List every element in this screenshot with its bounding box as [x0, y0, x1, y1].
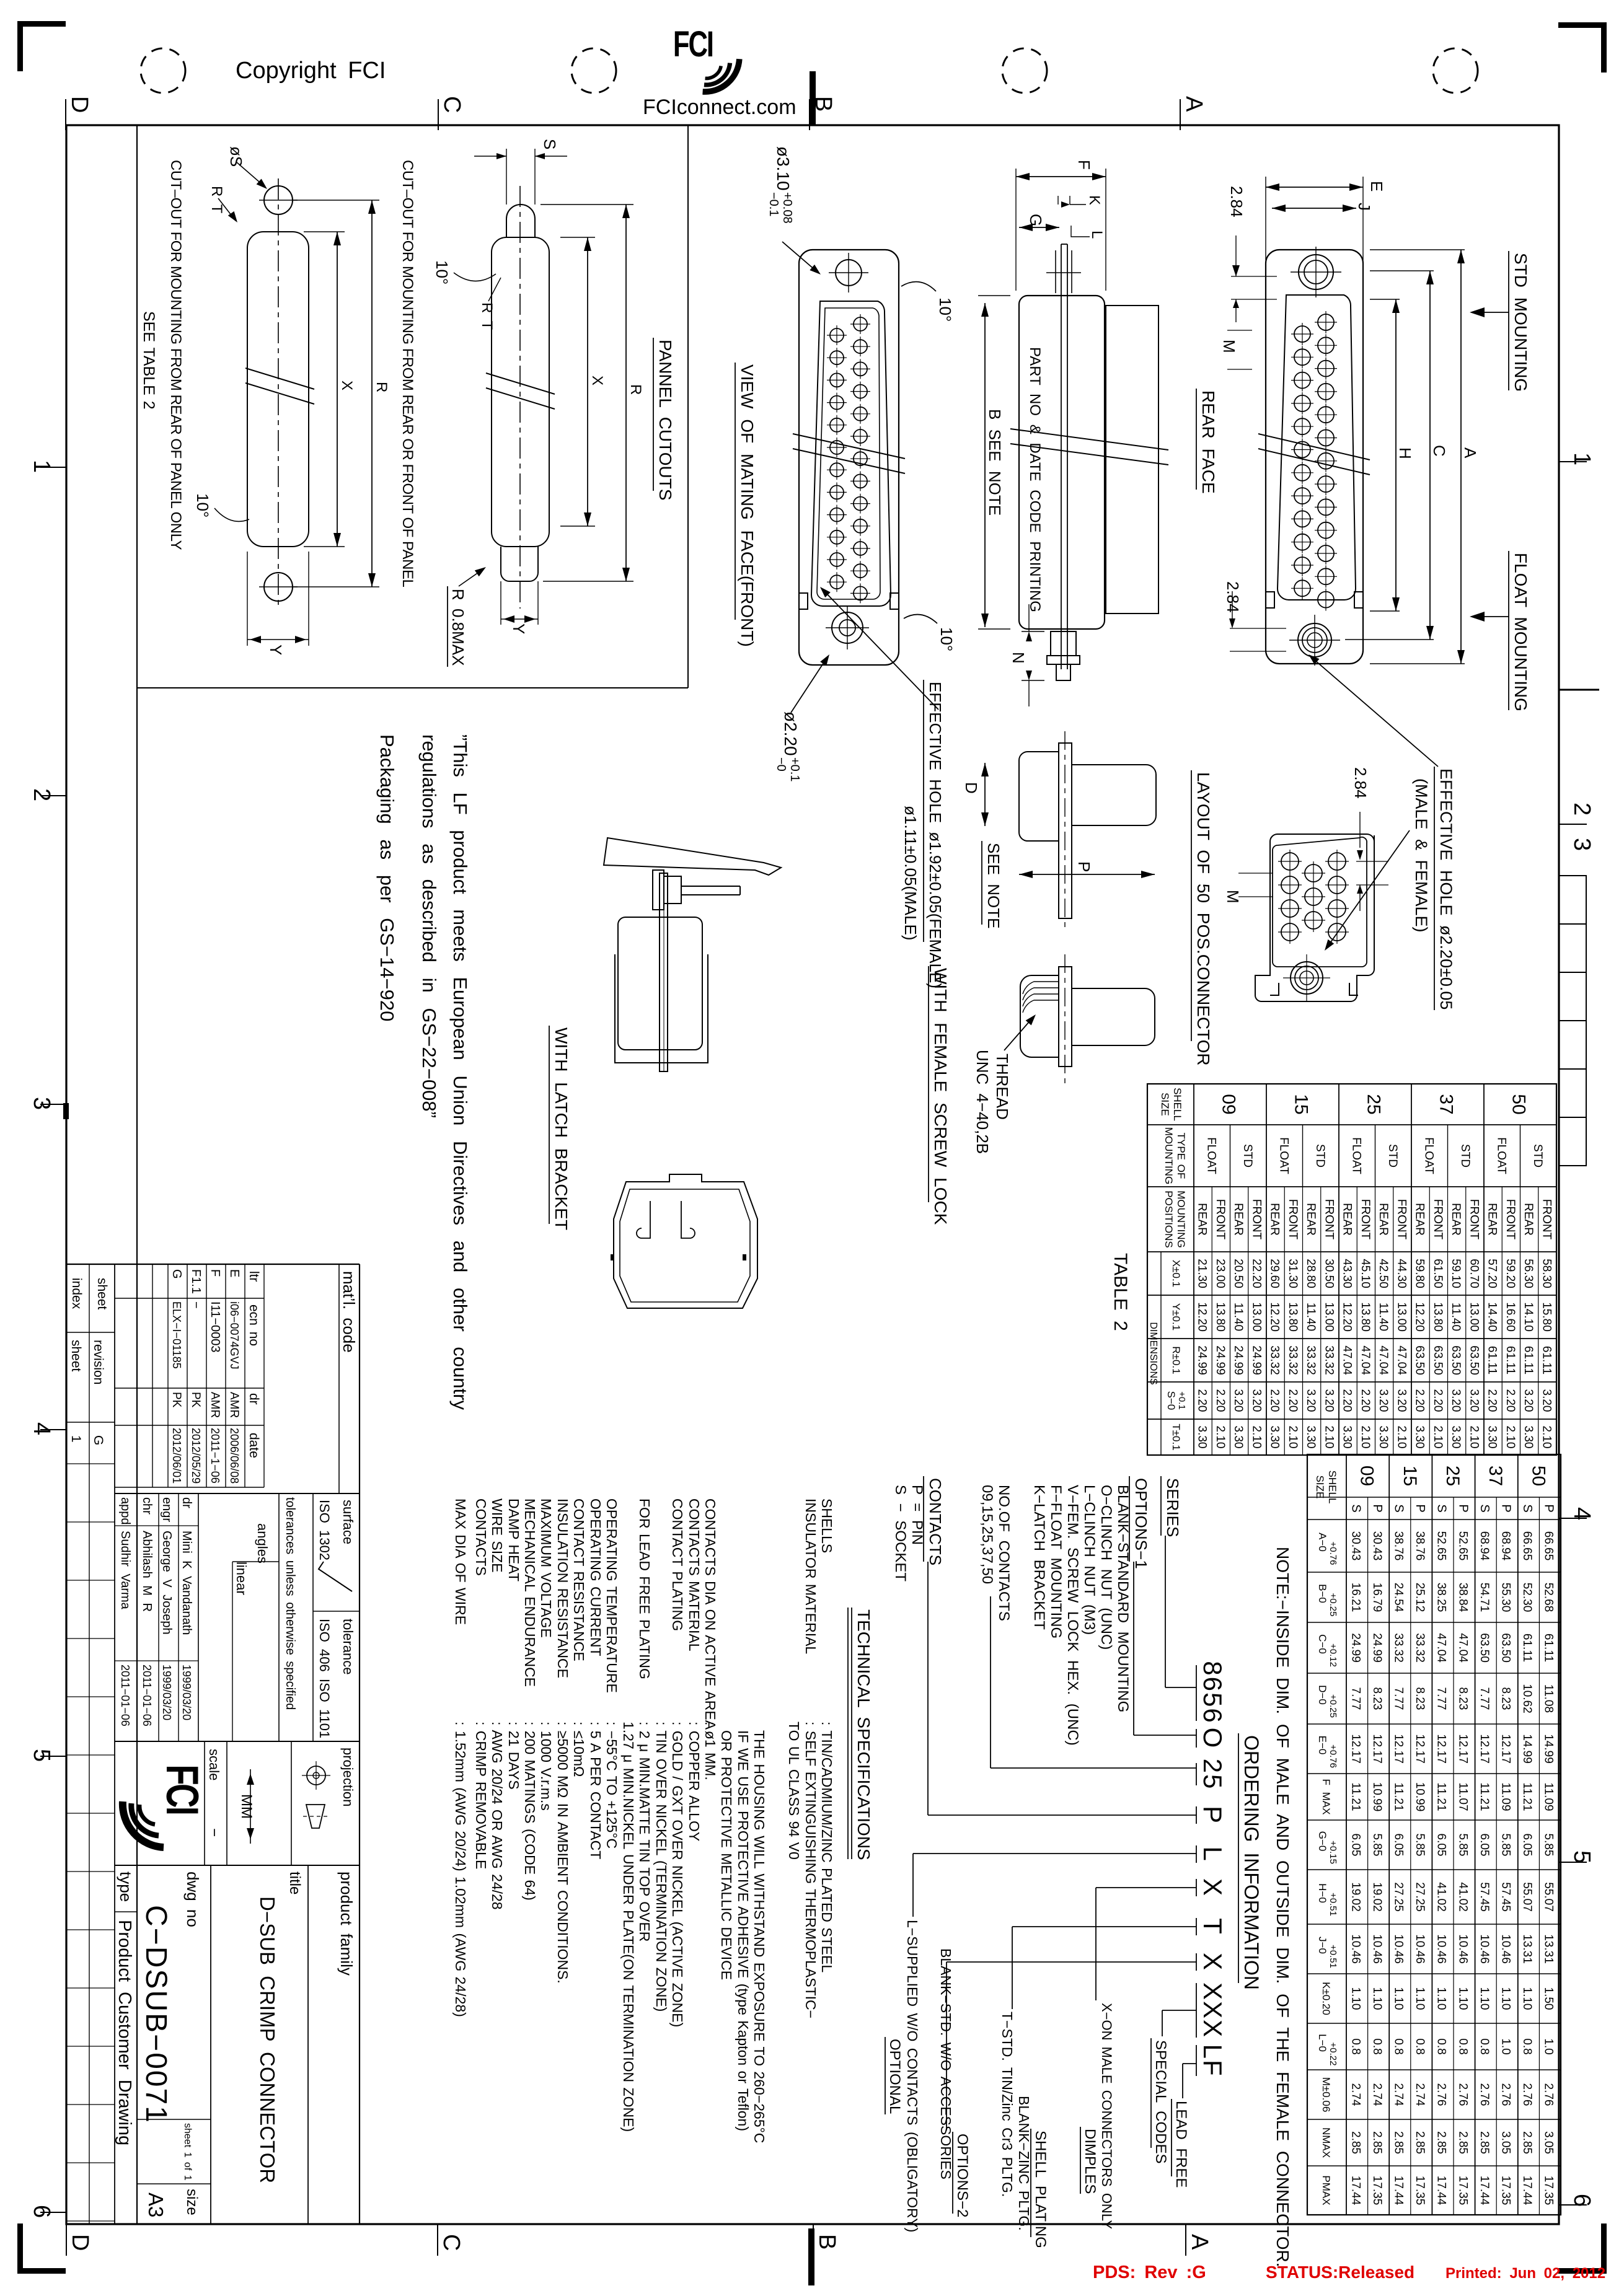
svg-text:1.10: 1.10	[1349, 1987, 1362, 2010]
svg-text:: TIN OVER NICKEL (TERMINATION: : TIN OVER NICKEL (TERMINATION ZONE)	[653, 1722, 669, 2012]
svg-text:15.80: 15.80	[1540, 1302, 1553, 1332]
svg-text:27.25: 27.25	[1413, 1882, 1426, 1912]
svg-text:2.85: 2.85	[1478, 2131, 1491, 2154]
svg-text:FLOAT: FLOAT	[1349, 1137, 1362, 1174]
svg-text:+0.51: +0.51	[1328, 1945, 1338, 1968]
svg-text:1.10: 1.10	[1370, 1987, 1383, 2010]
svg-text:REAR: REAR	[1486, 1203, 1499, 1236]
svg-text:REAR: REAR	[1232, 1203, 1245, 1236]
svg-text:SHELL: SHELL	[1172, 1088, 1183, 1121]
svg-text:2.10: 2.10	[1395, 1426, 1408, 1449]
svg-text:X: X	[338, 380, 355, 390]
svg-text:0.8: 0.8	[1520, 2038, 1534, 2054]
svg-text:Y: Y	[510, 623, 528, 634]
svg-text:09: 09	[1357, 1466, 1377, 1486]
svg-text:23.00: 23.00	[1214, 1259, 1227, 1288]
svg-text:5.85: 5.85	[1370, 1834, 1383, 1857]
svg-text:50: 50	[1528, 1466, 1548, 1486]
svg-text:MOUNTING: MOUNTING	[1175, 1190, 1187, 1248]
svg-text:68.94: 68.94	[1478, 1531, 1491, 1561]
svg-text:2011−1−06: 2011−1−06	[209, 1428, 221, 1484]
svg-text:14.99: 14.99	[1520, 1734, 1534, 1764]
svg-text:11.40: 11.40	[1377, 1303, 1390, 1331]
svg-text:61.11: 61.11	[1522, 1346, 1535, 1375]
svg-text:33.32: 33.32	[1304, 1345, 1317, 1375]
svg-text:projection: projection	[340, 1748, 356, 1806]
svg-text:10°: 10°	[936, 297, 955, 322]
svg-text:10.99: 10.99	[1370, 1782, 1383, 1812]
svg-text:(MALE & FEMALE): (MALE & FEMALE)	[1412, 778, 1431, 933]
svg-text:LF: LF	[1198, 2044, 1227, 2077]
svg-text:S: S	[1478, 1504, 1491, 1512]
svg-text:38.76: 38.76	[1413, 1531, 1426, 1561]
svg-text:19.02: 19.02	[1370, 1882, 1383, 1912]
svg-text:50: 50	[1509, 1094, 1529, 1114]
svg-text:P = PIN: P = PIN	[909, 1485, 925, 1545]
svg-text:S−0: S−0	[1165, 1391, 1177, 1410]
svg-text:G: G	[91, 1435, 105, 1445]
svg-text:: AWG 20/24 OR AWG 24/28: : AWG 20/24 OR AWG 24/28	[489, 1722, 505, 1910]
svg-text:: TIN/CADMIUM/ZINC PLATED STEE: : TIN/CADMIUM/ZINC PLATED STEEL	[819, 1722, 835, 1973]
svg-text:REAR: REAR	[1522, 1203, 1535, 1236]
svg-text:16.79: 16.79	[1370, 1583, 1383, 1612]
svg-text:FRONT: FRONT	[1504, 1199, 1517, 1240]
svg-text:41.02: 41.02	[1456, 1882, 1469, 1912]
svg-text:3.20: 3.20	[1522, 1389, 1535, 1412]
svg-text:10.46: 10.46	[1478, 1934, 1491, 1964]
svg-text:PART NO & DATE CODE PRINTING: PART NO & DATE CODE PRINTING	[1026, 347, 1043, 612]
svg-text:11.21: 11.21	[1392, 1782, 1405, 1811]
svg-text:09,15,25,37,50: 09,15,25,37,50	[979, 1485, 995, 1584]
svg-text:mat’l. code: mat’l. code	[340, 1271, 358, 1353]
svg-text:J: J	[1355, 203, 1374, 211]
svg-text:: 2 μ MIN.MATTE TIN TOP OVER: : 2 μ MIN.MATTE TIN TOP OVER	[637, 1722, 653, 1942]
svg-text:tolerances unless otherwise sp: tolerances unless otherwise specified	[283, 1497, 297, 1710]
svg-text:R T: R T	[208, 186, 225, 214]
svg-text:2.10: 2.10	[1214, 1426, 1227, 1449]
svg-text:F: F	[208, 1269, 222, 1277]
svg-text:31.30: 31.30	[1286, 1259, 1299, 1288]
svg-text:2.20: 2.20	[1359, 1389, 1372, 1412]
svg-text:43.30: 43.30	[1341, 1259, 1354, 1288]
svg-text:CONTACTS: CONTACTS	[926, 1478, 945, 1565]
svg-text:6.05: 6.05	[1349, 1834, 1362, 1857]
svg-text:WITH LATCH BRACKET: WITH LATCH BRACKET	[552, 1027, 571, 1230]
svg-text:29.60: 29.60	[1268, 1259, 1281, 1288]
svg-text:engr: engr	[160, 1497, 174, 1522]
svg-text:12.17: 12.17	[1392, 1734, 1405, 1764]
svg-text:2.20: 2.20	[1431, 1389, 1444, 1412]
svg-text:3.20: 3.20	[1540, 1389, 1553, 1412]
svg-text:3.30: 3.30	[1486, 1426, 1499, 1449]
svg-text:FCI: FCI	[157, 1764, 208, 1814]
svg-text:sheet: sheet	[69, 1340, 83, 1372]
svg-text:S: S	[1435, 1504, 1449, 1512]
svg-text:0.8: 0.8	[1349, 2038, 1362, 2054]
svg-text:3.30: 3.30	[1377, 1426, 1390, 1449]
svg-text:17.35: 17.35	[1456, 2176, 1469, 2206]
svg-text:52.65: 52.65	[1435, 1531, 1448, 1561]
svg-text:C−DSUB−0071: C−DSUB−0071	[139, 1905, 172, 2124]
svg-text:THREAD: THREAD	[993, 1053, 1012, 1120]
svg-text:B SEE NOTE: B SEE NOTE	[986, 409, 1004, 516]
svg-text:: COPPER ALLOY: : COPPER ALLOY	[686, 1722, 702, 1841]
svg-text:FLOAT: FLOAT	[1277, 1137, 1290, 1174]
svg-text:22.20: 22.20	[1250, 1259, 1263, 1288]
svg-text:10.46: 10.46	[1392, 1934, 1405, 1964]
svg-text:1.10: 1.10	[1413, 1987, 1426, 2010]
svg-text:B: B	[814, 2234, 840, 2250]
svg-text:STD MOUNTING: STD MOUNTING	[1511, 253, 1530, 392]
svg-text:3.05: 3.05	[1542, 2131, 1555, 2154]
svg-text:PMAX: PMAX	[1320, 2175, 1332, 2205]
svg-text:13.80: 13.80	[1359, 1302, 1372, 1332]
svg-text:FRONT: FRONT	[1286, 1199, 1299, 1240]
svg-text:2011−01−06: 2011−01−06	[119, 1665, 131, 1726]
svg-text:30.50: 30.50	[1322, 1259, 1335, 1288]
svg-text:FCI: FCI	[673, 24, 713, 64]
svg-text:5: 5	[29, 1749, 55, 1762]
svg-text:R±0.1: R±0.1	[1170, 1346, 1182, 1374]
svg-text:ORDERING INFORMATION: ORDERING INFORMATION	[1240, 1735, 1263, 1990]
svg-text:2.74: 2.74	[1413, 2083, 1426, 2106]
svg-text:INSULATOR MATERIAL: INSULATOR MATERIAL	[803, 1498, 819, 1654]
svg-text:PK: PK	[170, 1392, 183, 1408]
svg-text:L−SUPPLIED W/O CONTACTS (OBLIG: L−SUPPLIED W/O CONTACTS (OBLIGATORY)	[904, 1920, 920, 2232]
svg-text:1999/03/20: 1999/03/20	[161, 1665, 173, 1720]
svg-text:3.05: 3.05	[1499, 2131, 1512, 2154]
svg-text:FRONT: FRONT	[1214, 1199, 1227, 1240]
svg-text:1: 1	[69, 1435, 83, 1443]
svg-text:SPECIAL CODES: SPECIAL CODES	[1152, 2040, 1169, 2164]
svg-text:3.30: 3.30	[1268, 1426, 1281, 1449]
svg-text:2.76: 2.76	[1456, 2083, 1469, 2106]
svg-text:8.23: 8.23	[1370, 1687, 1383, 1710]
svg-text:17.35: 17.35	[1542, 2176, 1555, 2206]
svg-text:09: 09	[1219, 1094, 1239, 1114]
svg-text:REAR: REAR	[1268, 1203, 1281, 1236]
svg-text:6.05: 6.05	[1520, 1834, 1534, 1857]
svg-text:2.85: 2.85	[1349, 2131, 1362, 2154]
svg-text:61.50: 61.50	[1431, 1259, 1444, 1288]
svg-text:10°: 10°	[433, 260, 451, 284]
svg-text:SIZE: SIZE	[1314, 1476, 1326, 1499]
svg-text:I11−0003: I11−0003	[208, 1301, 222, 1353]
svg-text:19.02: 19.02	[1349, 1882, 1362, 1912]
svg-text:61.11: 61.11	[1540, 1346, 1553, 1375]
svg-text:ø3.10: ø3.10	[774, 146, 793, 191]
svg-text:15: 15	[1291, 1094, 1312, 1114]
svg-text:type: type	[117, 1872, 135, 1902]
svg-text:11.09: 11.09	[1499, 1782, 1512, 1811]
svg-text:: GOLD / GXT OVER NICKEL (ACTI: : GOLD / GXT OVER NICKEL (ACTIVE ZONE)	[669, 1722, 686, 2027]
svg-text:D: D	[962, 782, 981, 794]
svg-text:appd: appd	[118, 1497, 132, 1525]
svg-text:2.10: 2.10	[1286, 1426, 1299, 1449]
svg-text:ISO 406 ISO 1101: ISO 406 ISO 1101	[317, 1619, 332, 1738]
svg-text:2.84: 2.84	[1227, 186, 1246, 218]
svg-text:1.10: 1.10	[1456, 1987, 1469, 2010]
svg-text:R T: R T	[479, 302, 495, 330]
svg-text:10.46: 10.46	[1456, 1934, 1469, 1964]
svg-text:dr: dr	[247, 1393, 261, 1405]
svg-text:E: E	[1367, 181, 1386, 191]
svg-text:12.20: 12.20	[1196, 1302, 1209, 1332]
svg-text:37: 37	[1436, 1094, 1457, 1114]
svg-text:+0.15: +0.15	[1328, 1841, 1338, 1864]
svg-text:index: index	[69, 1278, 84, 1309]
svg-text:G: G	[1026, 214, 1045, 226]
svg-text:SERIES: SERIES	[1163, 1478, 1182, 1537]
svg-text:3.30: 3.30	[1341, 1426, 1354, 1449]
svg-text:O−CLINCH NUT (UNC): O−CLINCH NUT (UNC)	[1098, 1485, 1114, 1650]
svg-text:K: K	[1086, 195, 1103, 205]
svg-text:L: L	[1088, 231, 1105, 239]
svg-text:41.02: 41.02	[1435, 1882, 1448, 1912]
svg-text:3.20: 3.20	[1304, 1389, 1317, 1412]
svg-text:10°: 10°	[937, 627, 956, 651]
svg-text:2.76: 2.76	[1435, 2083, 1448, 2106]
svg-text:title: title	[286, 1872, 303, 1894]
svg-text:5.85: 5.85	[1499, 1834, 1512, 1857]
svg-text:REAR: REAR	[1377, 1203, 1390, 1236]
svg-text:11.07: 11.07	[1456, 1782, 1469, 1811]
svg-text:MAX DIA OF WIRE: MAX DIA OF WIRE	[452, 1498, 469, 1625]
svg-text:27.25: 27.25	[1392, 1882, 1405, 1912]
svg-text:15: 15	[1400, 1466, 1420, 1486]
svg-text:DIMPLES: DIMPLES	[1082, 2129, 1098, 2194]
svg-text:7.77: 7.77	[1435, 1687, 1448, 1710]
svg-text:12.17: 12.17	[1370, 1734, 1383, 1764]
svg-text:12.20: 12.20	[1413, 1302, 1426, 1332]
svg-text:ø2.20: ø2.20	[781, 711, 800, 756]
svg-text:54.71: 54.71	[1478, 1583, 1491, 1612]
svg-text:X: X	[589, 376, 606, 385]
svg-text:LEAD FREE: LEAD FREE	[1173, 2101, 1189, 2188]
svg-text:size: size	[183, 2189, 200, 2215]
svg-text:52.68: 52.68	[1542, 1583, 1555, 1612]
svg-text:S: S	[541, 139, 559, 149]
svg-text:17.35: 17.35	[1499, 2176, 1512, 2206]
svg-text:STATUS:Released: STATUS:Released	[1266, 2263, 1414, 2282]
svg-text:33.32: 33.32	[1413, 1633, 1426, 1663]
svg-text:11.40: 11.40	[1304, 1303, 1317, 1331]
svg-text:STD: STD	[1531, 1144, 1544, 1168]
svg-text:8656: 8656	[1198, 1661, 1227, 1723]
svg-text:CONTACTS MATERIAL: CONTACTS MATERIAL	[686, 1498, 702, 1652]
svg-text:14.40: 14.40	[1486, 1302, 1499, 1332]
svg-text:13.00: 13.00	[1250, 1302, 1263, 1332]
svg-text:P: P	[1413, 1504, 1427, 1512]
svg-text:FOR LEAD FREE PLATING: FOR LEAD FREE PLATING	[637, 1498, 653, 1679]
svg-text:0.8: 0.8	[1435, 2038, 1448, 2054]
svg-text:S − SOCKET: S − SOCKET	[892, 1485, 909, 1581]
svg-text:5: 5	[1569, 1850, 1595, 1863]
svg-text:A: A	[1461, 447, 1480, 459]
svg-text:47.04: 47.04	[1456, 1633, 1469, 1663]
svg-text:3.20: 3.20	[1467, 1389, 1480, 1412]
svg-text:7.77: 7.77	[1392, 1687, 1405, 1710]
svg-text:60.70: 60.70	[1467, 1259, 1480, 1288]
svg-text:CUT–OUT FOR MOUNTING FROM: CUT–OUT FOR MOUNTING FROM REAR OF PANEL …	[167, 160, 184, 550]
svg-text:TYPE OF: TYPE OF	[1175, 1133, 1187, 1179]
svg-text:3.20: 3.20	[1322, 1389, 1335, 1412]
svg-text:X: X	[1198, 1878, 1227, 1897]
svg-text:24.54: 24.54	[1392, 1583, 1405, 1612]
svg-text:D: D	[66, 96, 92, 113]
svg-text:+0.25: +0.25	[1328, 1593, 1338, 1617]
svg-text:12.17: 12.17	[1499, 1734, 1512, 1764]
svg-text:55.07: 55.07	[1542, 1882, 1555, 1912]
svg-text:11.21: 11.21	[1520, 1782, 1534, 1811]
svg-text:ecn no: ecn no	[247, 1304, 261, 1346]
svg-text:24.99: 24.99	[1232, 1345, 1245, 1375]
svg-text:21.30: 21.30	[1196, 1259, 1209, 1288]
svg-text:+0.1: +0.1	[788, 757, 801, 781]
svg-text:47.04: 47.04	[1395, 1345, 1408, 1375]
svg-text:17.44: 17.44	[1435, 2176, 1448, 2206]
svg-text:1.27 μ MIN.NICKEL UNDER PLATE(: 1.27 μ MIN.NICKEL UNDER PLATE(ON TERMINA…	[620, 1722, 637, 2132]
svg-text:10.99: 10.99	[1413, 1782, 1426, 1812]
svg-text:24.99: 24.99	[1349, 1633, 1362, 1663]
svg-text:2.20: 2.20	[1268, 1389, 1281, 1412]
svg-text:13.80: 13.80	[1431, 1302, 1444, 1332]
svg-text:FLOAT: FLOAT	[1494, 1137, 1507, 1174]
svg-text:P: P	[1542, 1504, 1556, 1512]
svg-text:2.85: 2.85	[1413, 2131, 1426, 2154]
svg-text:3.20: 3.20	[1377, 1389, 1390, 1412]
svg-text:BLANK−STD. W/O ACCESSORIES: BLANK−STD. W/O ACCESSORIES	[938, 1948, 954, 2179]
svg-text:2: 2	[29, 788, 55, 801]
svg-text:AMR: AMR	[227, 1392, 241, 1418]
svg-text:sheet: sheet	[95, 1278, 109, 1310]
svg-text:OPERATING CURRENT: OPERATING CURRENT	[588, 1498, 604, 1656]
svg-text:IF WE USE PROTECTIVE ADHESIVE: IF WE USE PROTECTIVE ADHESIVE (type Kapt…	[735, 1730, 751, 2131]
svg-text:X±0.1: X±0.1	[1170, 1260, 1182, 1287]
svg-text:T−STD. TIN/Zinc Cr3 PLTG.: T−STD. TIN/Zinc Cr3 PLTG.	[999, 2012, 1015, 2197]
svg-text:: −55°C TO +125°C: : −55°C TO +125°C	[604, 1722, 620, 1849]
svg-text:59.20: 59.20	[1504, 1259, 1517, 1288]
svg-text:11.09: 11.09	[1542, 1782, 1555, 1811]
svg-text:3.30: 3.30	[1196, 1426, 1209, 1449]
svg-text:VIEW OF MATING FACE(FRONT): VIEW OF MATING FACE(FRONT)	[738, 364, 757, 647]
svg-text:−: −	[206, 1828, 223, 1837]
svg-text:regulations as described in: regulations as described in GS−22−008”	[418, 734, 440, 1118]
svg-text:63.50: 63.50	[1478, 1633, 1491, 1663]
svg-text:13.31: 13.31	[1542, 1934, 1555, 1964]
svg-text:FRONT: FRONT	[1395, 1199, 1408, 1240]
svg-text:REAR: REAR	[1413, 1203, 1426, 1236]
svg-text:3: 3	[1569, 838, 1595, 851]
svg-text:11.40: 11.40	[1232, 1303, 1245, 1331]
svg-text:16.21: 16.21	[1349, 1583, 1362, 1612]
svg-text:1.10: 1.10	[1520, 1987, 1534, 2010]
svg-text:12.17: 12.17	[1435, 1734, 1448, 1764]
svg-text:12.20: 12.20	[1341, 1302, 1354, 1332]
svg-text:2.10: 2.10	[1250, 1426, 1263, 1449]
svg-text:linear: linear	[234, 1562, 249, 1595]
svg-text:24.99: 24.99	[1370, 1633, 1383, 1663]
svg-text:L: L	[1198, 1846, 1227, 1862]
svg-text:LAYOUT OF 50 POS.CONNECTOR: LAYOUT OF 50 POS.CONNECTOR	[1194, 772, 1213, 1066]
svg-text:42.50: 42.50	[1377, 1259, 1390, 1288]
svg-text:10.46: 10.46	[1499, 1934, 1512, 1964]
svg-text:3: 3	[29, 1097, 55, 1110]
svg-text:57.45: 57.45	[1478, 1882, 1491, 1912]
svg-text:+0.76: +0.76	[1328, 1542, 1338, 1565]
svg-text:30.43: 30.43	[1349, 1531, 1362, 1561]
svg-text:7.77: 7.77	[1349, 1687, 1362, 1710]
svg-text:angles: angles	[255, 1523, 270, 1564]
svg-text:1.0: 1.0	[1499, 2038, 1512, 2054]
svg-text:B−0: B−0	[1317, 1584, 1328, 1603]
svg-text:FLOAT: FLOAT	[1422, 1137, 1435, 1174]
svg-text:REAR: REAR	[1304, 1203, 1317, 1236]
svg-text:ø1.11±0.05(MALE): ø1.11±0.05(MALE)	[901, 806, 920, 941]
svg-text:Y±0.1: Y±0.1	[1170, 1303, 1182, 1331]
svg-text:H: H	[1396, 447, 1414, 459]
svg-text:S: S	[1392, 1504, 1406, 1512]
svg-text:R: R	[373, 382, 390, 392]
svg-text:P: P	[1499, 1504, 1513, 1512]
svg-text:2.10: 2.10	[1322, 1426, 1335, 1449]
svg-text:2.20: 2.20	[1214, 1389, 1227, 1412]
svg-text:33.32: 33.32	[1286, 1345, 1299, 1375]
svg-text:A: A	[1181, 96, 1207, 112]
svg-text:F1.1: F1.1	[189, 1269, 203, 1294]
svg-text:A−0: A−0	[1317, 1533, 1328, 1552]
svg-text:2011−01−06: 2011−01−06	[141, 1665, 153, 1726]
svg-text:ELX−I−01185: ELX−I−01185	[170, 1301, 183, 1369]
svg-text:10.62: 10.62	[1520, 1684, 1534, 1713]
svg-text:8.23: 8.23	[1499, 1687, 1512, 1710]
svg-text:i06−0074GVJ: i06−0074GVJ	[228, 1301, 241, 1370]
svg-text:45.10: 45.10	[1359, 1259, 1372, 1288]
svg-text:SEE NOTE: SEE NOTE	[984, 843, 1003, 928]
svg-text:THE HOUSING WILL WITHSTAND EXP: THE HOUSING WILL WITHSTAND EXPOSURE TO 2…	[751, 1730, 767, 2143]
svg-text:AMR: AMR	[208, 1392, 221, 1418]
svg-text:3.30: 3.30	[1522, 1426, 1535, 1449]
svg-text:+0.1: +0.1	[1176, 1391, 1187, 1410]
svg-text:dwg no: dwg no	[183, 1872, 202, 1927]
svg-text:38.25: 38.25	[1435, 1583, 1448, 1612]
svg-text:57.45: 57.45	[1499, 1882, 1512, 1912]
svg-text:: ø1 MM.: : ø1 MM.	[702, 1722, 718, 1780]
svg-text:FRONT: FRONT	[1431, 1199, 1444, 1240]
svg-text:2.85: 2.85	[1435, 2131, 1448, 2154]
svg-text:DIMENSIONS: DIMENSIONS	[1148, 1322, 1158, 1384]
svg-text:FCIconnect.com: FCIconnect.com	[643, 95, 797, 119]
svg-text:25.12: 25.12	[1413, 1583, 1426, 1612]
svg-text:STD: STD	[1459, 1144, 1472, 1168]
svg-text:XXX: XXX	[1198, 1982, 1227, 2038]
svg-text:F MAX: F MAX	[1320, 1779, 1332, 1815]
svg-text:E−0: E−0	[1317, 1736, 1328, 1755]
svg-text:6.05: 6.05	[1392, 1834, 1405, 1857]
svg-text:5.85: 5.85	[1413, 1834, 1426, 1857]
svg-text:13.80: 13.80	[1214, 1302, 1227, 1332]
svg-text:12.17: 12.17	[1413, 1734, 1426, 1764]
svg-text:55.07: 55.07	[1520, 1882, 1534, 1912]
svg-text:George V Joseph: George V Joseph	[160, 1531, 174, 1635]
svg-text:: 1.52mm (AWG 20/24) 1.02mm (A: : 1.52mm (AWG 20/24) 1.02mm (AWG 24/28)	[452, 1722, 469, 2017]
svg-text:25: 25	[1442, 1466, 1463, 1486]
svg-text:12.17: 12.17	[1456, 1734, 1469, 1764]
svg-text:0.8: 0.8	[1413, 2038, 1426, 2054]
svg-text:12.17: 12.17	[1478, 1734, 1491, 1764]
svg-text:47.04: 47.04	[1341, 1345, 1354, 1375]
svg-text:2.76: 2.76	[1542, 2083, 1555, 2106]
